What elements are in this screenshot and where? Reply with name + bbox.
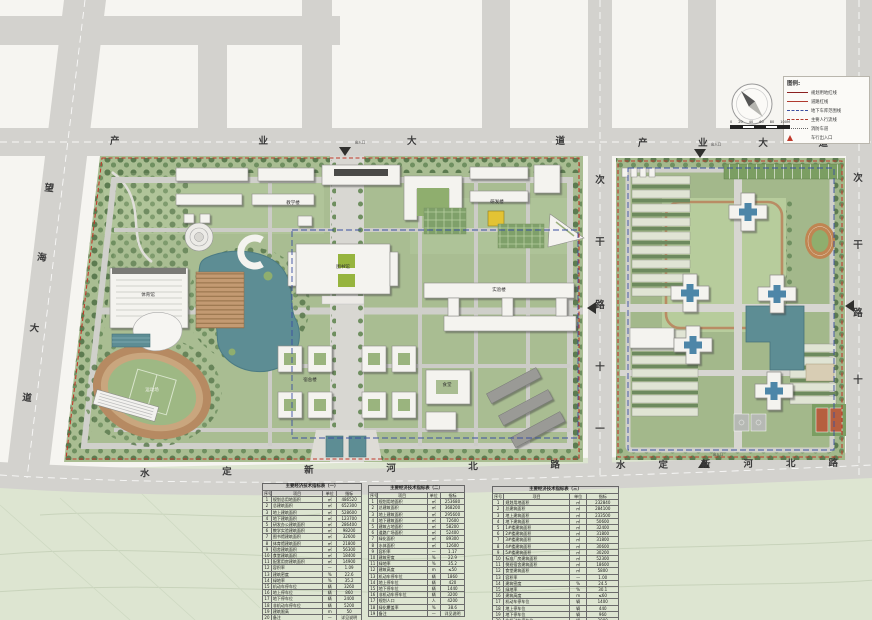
legend-symbol-road-line — [787, 101, 808, 102]
left-campus — [64, 156, 584, 462]
label-lab: 实验楼 — [492, 289, 506, 294]
legend-row: 规划用地红线 — [787, 88, 866, 97]
legend-panel: 图例: 规划用地红线 道路红线 地下车库范围线 主要人行流线 消防车道 车行出入… — [783, 76, 870, 144]
label-stadium: 运动场 — [145, 389, 159, 394]
legend-symbol-garage-line — [787, 110, 808, 111]
table-title: 主要经济技术指标表（一） — [262, 483, 362, 490]
label-dorm: 宿舍楼 — [303, 379, 317, 384]
label-library: 图书馆 — [336, 266, 350, 271]
legend-title: 图例: — [787, 79, 866, 87]
label-gym: 体育馆 — [141, 294, 155, 299]
entrance-label-2: 出入口 — [711, 143, 722, 148]
label-rnd: 研发楼 — [490, 201, 504, 206]
terraced-seating — [196, 272, 244, 328]
middle-secondary-road — [588, 0, 612, 478]
legend-symbol-pedestrian-line — [787, 119, 808, 120]
table-grid: 序号 项目 单位 指标 1 规划用地面积 ㎡ 253680 2 总建筑面积 ㎡ … — [368, 492, 465, 617]
indicator-table-2: 主要经济技术指标表（二） 序号 项目 单位 指标 1 规划用地面积 ㎡ 2536… — [368, 485, 465, 617]
legend-row: 地下车库范围线 — [787, 106, 866, 115]
legend-symbol-site-boundary — [787, 92, 808, 93]
indicator-table-3: 主要经济技术指标表（三） 序号 项目 单位 指标 1 规划用地面积 ㎡ 2328… — [492, 486, 619, 620]
indicator-table-1: 主要经济技术指标表（一） 序号 项目 单位 指标 1 规划总用地面积 ㎡ 486… — [262, 483, 362, 620]
legend-row: 消防车道 — [787, 124, 866, 133]
table-row: 19 备注 — 详见说明 — [369, 610, 465, 616]
legend-symbol-fire-lane — [787, 128, 808, 129]
south-gate-plaza — [310, 430, 382, 461]
legend-symbol-vehicle-entrance — [787, 135, 793, 141]
legend-row: 道路红线 — [787, 97, 866, 106]
entrance-label-1: 出入口 — [355, 141, 366, 146]
label-teaching: 教学楼 — [286, 202, 300, 207]
tennis-courts — [812, 404, 846, 436]
table-grid: 序号 项目 单位 指标 1 规划总用地面积 ㎡ 486520 2 总建筑面积 ㎡… — [262, 490, 362, 620]
label-canteen: 食堂 — [443, 384, 452, 389]
gate-pool-left — [326, 436, 343, 457]
table-grid: 序号 项目 单位 指标 1 规划用地面积 ㎡ 232840 2 总建筑面积 ㎡ … — [492, 493, 619, 620]
scale-bar-segments — [730, 125, 790, 130]
outdoor-pool — [112, 334, 150, 347]
compass — [732, 84, 772, 124]
table-row: 20 备注 — 详见说明 — [263, 615, 362, 620]
right-campus — [616, 158, 846, 460]
sports-courts-strip — [724, 164, 842, 179]
legend-row: 主要人行流线 — [787, 115, 866, 124]
mini-track — [805, 223, 835, 259]
right-secondary-road — [846, 0, 872, 478]
service-building — [806, 364, 834, 381]
entrance-label-3: 出入口 — [713, 453, 724, 458]
scale-bar: 0 20 40 60 80 100M — [730, 120, 790, 129]
master-plan-canvas: 产业大道 产业大道 水定新河北路 水定新河北路 望海大道 次干路十一 次干路十 … — [0, 0, 872, 620]
table-title: 主要经济技术指标表（二） — [368, 485, 465, 492]
table-title: 主要经济技术指标表（三） — [492, 486, 619, 493]
legend-row: 车行出入口 — [787, 133, 866, 142]
gate-pool-right — [349, 436, 366, 457]
scale-bar-numbers: 0 20 40 60 80 100M — [730, 120, 790, 124]
